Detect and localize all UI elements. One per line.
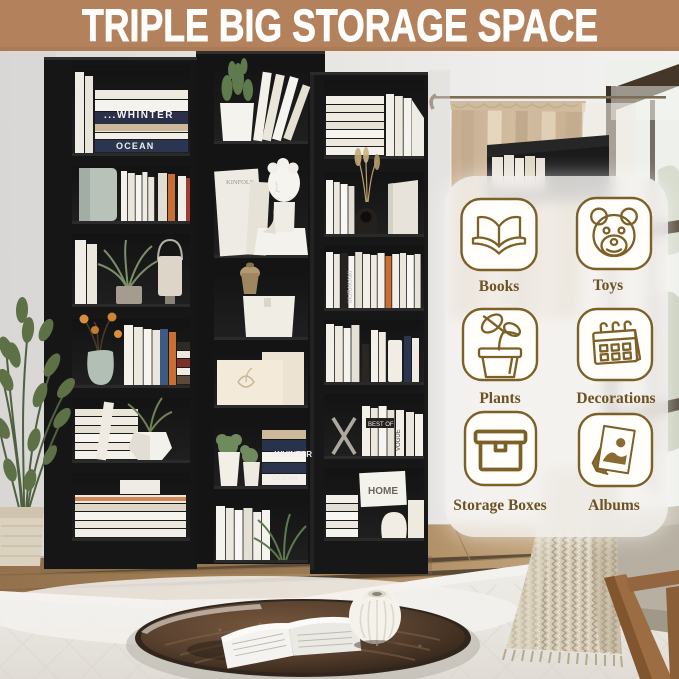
svg-text:HOME: HOME [368,486,398,497]
svg-text:TRIPLE BIG STORAGE SPACE: TRIPLE BIG STORAGE SPACE [82,0,598,51]
svg-text:...WHINTER: ...WHINTER [268,450,312,459]
svg-text:MURAKAMI: MURAKAMI [348,270,354,303]
svg-text:BEST OF: BEST OF [368,422,394,428]
svg-text:OCEAN: OCEAN [272,475,297,482]
svg-text:VOGUE: VOGUE [396,429,402,451]
svg-text:OCEAN: OCEAN [116,141,155,151]
svg-text:...WHINTER: ...WHINTER [104,110,174,121]
